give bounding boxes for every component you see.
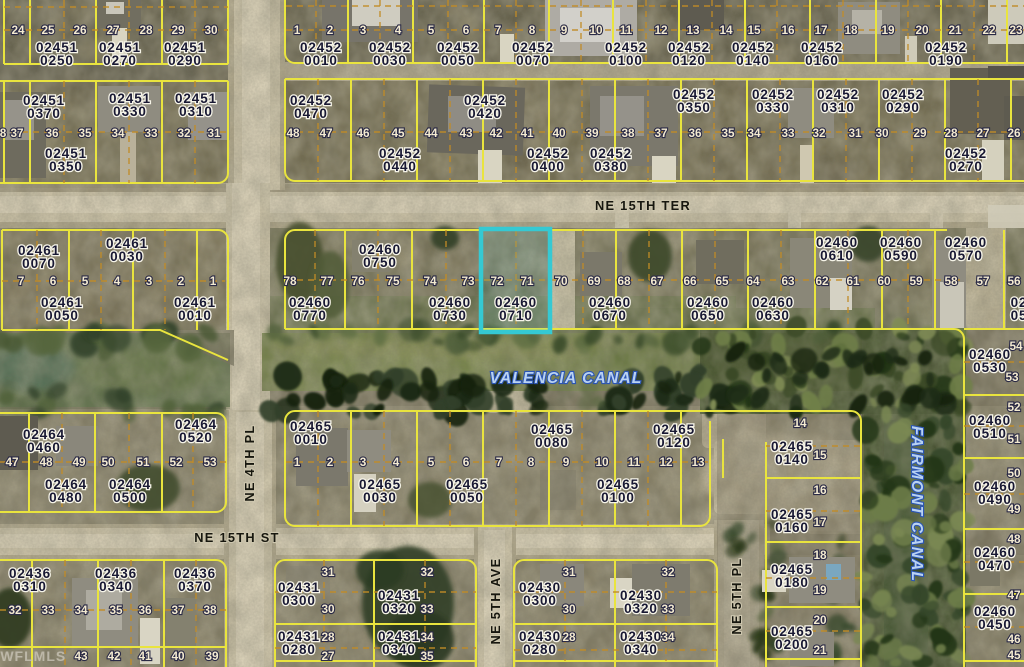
svg-text:27: 27 <box>976 126 990 140</box>
svg-text:17: 17 <box>814 23 828 37</box>
svg-text:17: 17 <box>813 515 827 529</box>
svg-text:63: 63 <box>781 274 795 288</box>
svg-text:0120: 0120 <box>657 435 691 450</box>
svg-text:0010: 0010 <box>178 308 212 323</box>
svg-text:33: 33 <box>661 602 675 616</box>
svg-text:0400: 0400 <box>531 159 565 174</box>
svg-text:50: 50 <box>101 455 115 469</box>
svg-text:15: 15 <box>747 23 761 37</box>
svg-text:6: 6 <box>463 23 470 37</box>
svg-text:2: 2 <box>327 455 334 469</box>
svg-text:37: 37 <box>654 126 668 140</box>
svg-text:SWFLMLS: SWFLMLS <box>0 648 66 664</box>
svg-text:14: 14 <box>793 416 807 430</box>
svg-text:0300: 0300 <box>282 593 316 608</box>
svg-text:0050: 0050 <box>441 53 475 68</box>
svg-text:0140: 0140 <box>736 53 770 68</box>
svg-text:FAIRMONT CANAL: FAIRMONT CANAL <box>908 426 925 582</box>
svg-text:21: 21 <box>813 643 827 657</box>
svg-text:0300: 0300 <box>523 593 557 608</box>
svg-text:48: 48 <box>286 126 300 140</box>
svg-text:0480: 0480 <box>49 490 83 505</box>
svg-text:64: 64 <box>746 274 760 288</box>
svg-text:31: 31 <box>562 565 576 579</box>
svg-text:39: 39 <box>585 126 599 140</box>
svg-text:0050: 0050 <box>45 308 79 323</box>
svg-text:73: 73 <box>461 274 475 288</box>
svg-text:37: 37 <box>171 603 185 617</box>
svg-text:40: 40 <box>171 649 185 663</box>
svg-text:0420: 0420 <box>468 106 502 121</box>
svg-text:13: 13 <box>686 23 700 37</box>
svg-text:0650: 0650 <box>691 308 725 323</box>
svg-text:9: 9 <box>563 455 570 469</box>
svg-text:0100: 0100 <box>601 490 635 505</box>
svg-text:54: 54 <box>1009 339 1023 353</box>
svg-text:30: 30 <box>562 602 576 616</box>
svg-text:0530: 0530 <box>973 360 1007 375</box>
svg-text:47: 47 <box>319 126 333 140</box>
svg-text:4: 4 <box>395 23 402 37</box>
svg-text:0290: 0290 <box>886 100 920 115</box>
svg-text:15: 15 <box>813 448 827 462</box>
svg-text:0520: 0520 <box>179 430 213 445</box>
svg-text:32: 32 <box>177 126 191 140</box>
svg-text:43: 43 <box>459 126 473 140</box>
svg-text:58: 58 <box>944 274 958 288</box>
svg-text:35: 35 <box>78 126 92 140</box>
svg-text:36: 36 <box>45 126 59 140</box>
svg-text:0010: 0010 <box>294 432 328 447</box>
svg-text:0340: 0340 <box>382 642 416 657</box>
svg-text:39: 39 <box>205 649 219 663</box>
svg-text:33: 33 <box>420 602 434 616</box>
svg-text:0310: 0310 <box>13 579 47 594</box>
svg-text:36: 36 <box>138 603 152 617</box>
svg-text:7: 7 <box>18 274 25 288</box>
svg-text:0460: 0460 <box>27 440 61 455</box>
svg-text:2: 2 <box>327 23 334 37</box>
svg-text:0320: 0320 <box>624 601 658 616</box>
svg-text:3: 3 <box>360 23 367 37</box>
svg-text:59: 59 <box>909 274 923 288</box>
svg-text:43: 43 <box>74 649 88 663</box>
svg-text:74: 74 <box>423 274 437 288</box>
svg-text:VALENCIA CANAL: VALENCIA CANAL <box>490 370 643 387</box>
svg-text:33: 33 <box>781 126 795 140</box>
svg-text:0730: 0730 <box>433 308 467 323</box>
svg-text:60: 60 <box>877 274 891 288</box>
svg-text:69: 69 <box>587 274 601 288</box>
svg-text:41: 41 <box>520 126 534 140</box>
svg-text:8: 8 <box>529 23 536 37</box>
svg-text:42: 42 <box>489 126 503 140</box>
svg-text:0280: 0280 <box>282 642 316 657</box>
svg-text:38: 38 <box>203 603 217 617</box>
svg-text:20: 20 <box>915 23 929 37</box>
svg-text:0030: 0030 <box>363 490 397 505</box>
svg-text:30: 30 <box>204 23 218 37</box>
svg-text:6: 6 <box>463 455 470 469</box>
svg-text:9: 9 <box>561 23 568 37</box>
svg-text:28: 28 <box>139 23 153 37</box>
svg-text:0160: 0160 <box>775 520 809 535</box>
svg-text:0770: 0770 <box>293 308 327 323</box>
svg-text:65: 65 <box>715 274 729 288</box>
svg-text:0190: 0190 <box>929 53 963 68</box>
svg-text:10: 10 <box>595 455 609 469</box>
svg-text:11: 11 <box>628 455 641 469</box>
svg-text:8: 8 <box>528 455 535 469</box>
svg-text:51: 51 <box>1007 432 1021 446</box>
svg-text:28: 28 <box>562 630 576 644</box>
svg-text:0270: 0270 <box>949 159 983 174</box>
svg-text:6: 6 <box>50 274 57 288</box>
svg-text:0340: 0340 <box>99 579 133 594</box>
svg-text:0140: 0140 <box>775 452 809 467</box>
svg-text:30: 30 <box>875 126 889 140</box>
svg-text:2: 2 <box>178 274 185 288</box>
svg-text:52: 52 <box>1007 400 1021 414</box>
svg-text:51: 51 <box>136 455 150 469</box>
svg-text:13: 13 <box>691 455 705 469</box>
svg-text:23: 23 <box>1009 23 1023 37</box>
svg-text:0710: 0710 <box>499 308 533 323</box>
svg-text:26: 26 <box>1007 126 1021 140</box>
svg-text:72: 72 <box>490 274 504 288</box>
svg-text:52: 52 <box>169 455 183 469</box>
svg-text:12: 12 <box>654 23 668 37</box>
svg-text:18: 18 <box>813 548 827 562</box>
svg-text:48: 48 <box>1007 532 1021 546</box>
svg-text:45: 45 <box>391 126 405 140</box>
svg-text:40: 40 <box>552 126 566 140</box>
svg-text:0330: 0330 <box>756 100 790 115</box>
svg-text:48: 48 <box>39 455 53 469</box>
svg-text:34: 34 <box>661 630 675 644</box>
svg-text:0200: 0200 <box>775 637 809 652</box>
svg-text:0050: 0050 <box>450 490 484 505</box>
svg-text:34: 34 <box>74 603 88 617</box>
svg-text:22: 22 <box>982 23 996 37</box>
svg-text:50: 50 <box>1007 466 1021 480</box>
svg-text:25: 25 <box>41 23 55 37</box>
svg-text:7: 7 <box>496 455 503 469</box>
svg-text:41: 41 <box>138 649 152 663</box>
svg-text:NE 4TH PL: NE 4TH PL <box>242 424 257 501</box>
svg-text:3: 3 <box>360 455 367 469</box>
svg-text:34: 34 <box>111 126 125 140</box>
svg-text:66: 66 <box>683 274 697 288</box>
svg-text:31: 31 <box>321 565 335 579</box>
svg-text:28: 28 <box>321 630 335 644</box>
svg-text:0160: 0160 <box>805 53 839 68</box>
svg-text:35: 35 <box>420 649 434 663</box>
svg-text:42: 42 <box>107 649 121 663</box>
svg-text:0570: 0570 <box>949 248 983 263</box>
svg-text:5: 5 <box>82 274 89 288</box>
svg-text:0270: 0270 <box>103 53 137 68</box>
svg-text:35: 35 <box>721 126 735 140</box>
svg-text:76: 76 <box>351 274 365 288</box>
svg-text:7: 7 <box>495 23 502 37</box>
svg-text:0330: 0330 <box>113 104 147 119</box>
svg-text:0380: 0380 <box>594 159 628 174</box>
svg-text:0070: 0070 <box>516 53 550 68</box>
svg-text:33: 33 <box>41 603 55 617</box>
svg-text:12: 12 <box>659 455 673 469</box>
svg-text:28: 28 <box>944 126 958 140</box>
svg-text:4: 4 <box>393 455 400 469</box>
svg-text:29: 29 <box>171 23 185 37</box>
svg-text:1: 1 <box>294 455 301 469</box>
svg-text:70: 70 <box>554 274 568 288</box>
svg-text:27: 27 <box>321 649 335 663</box>
svg-text:5: 5 <box>428 23 435 37</box>
svg-text:0340: 0340 <box>624 642 658 657</box>
svg-text:32: 32 <box>420 565 434 579</box>
svg-text:1: 1 <box>294 23 301 37</box>
svg-text:0610: 0610 <box>820 248 854 263</box>
svg-text:34: 34 <box>747 126 761 140</box>
svg-text:0450: 0450 <box>978 617 1012 632</box>
svg-text:18: 18 <box>844 23 858 37</box>
svg-text:0310: 0310 <box>179 104 213 119</box>
svg-text:0080: 0080 <box>535 435 569 450</box>
svg-text:0180: 0180 <box>775 575 809 590</box>
svg-text:0010: 0010 <box>304 53 338 68</box>
svg-text:33: 33 <box>144 126 158 140</box>
svg-text:35: 35 <box>109 603 123 617</box>
svg-text:4: 4 <box>114 274 121 288</box>
svg-text:11: 11 <box>620 23 633 37</box>
svg-text:32: 32 <box>661 565 675 579</box>
svg-text:0500: 0500 <box>113 490 147 505</box>
svg-text:1: 1 <box>210 274 217 288</box>
svg-text:NE 5TH PL: NE 5TH PL <box>729 557 744 634</box>
svg-text:71: 71 <box>520 274 534 288</box>
svg-text:NE 15TH TER: NE 15TH TER <box>595 198 691 213</box>
svg-text:67: 67 <box>650 274 664 288</box>
svg-text:21: 21 <box>948 23 962 37</box>
svg-text:0470: 0470 <box>978 558 1012 573</box>
svg-text:NE 15TH ST: NE 15TH ST <box>194 530 280 545</box>
svg-text:46: 46 <box>1007 632 1021 646</box>
svg-text:14: 14 <box>719 23 733 37</box>
svg-text:0470: 0470 <box>294 106 328 121</box>
svg-text:27: 27 <box>106 23 120 37</box>
svg-text:3: 3 <box>146 274 153 288</box>
svg-text:32: 32 <box>8 603 22 617</box>
svg-text:0030: 0030 <box>373 53 407 68</box>
svg-text:32: 32 <box>812 126 826 140</box>
svg-text:0350: 0350 <box>677 100 711 115</box>
svg-text:05: 05 <box>1011 308 1024 323</box>
svg-text:53: 53 <box>1005 370 1019 384</box>
svg-text:29: 29 <box>913 126 927 140</box>
svg-text:20: 20 <box>813 613 827 627</box>
svg-text:0310: 0310 <box>821 100 855 115</box>
svg-text:0120: 0120 <box>672 53 706 68</box>
svg-text:38: 38 <box>621 126 635 140</box>
svg-text:77: 77 <box>320 274 334 288</box>
svg-text:47: 47 <box>1007 588 1021 602</box>
svg-text:62: 62 <box>815 274 829 288</box>
svg-text:24: 24 <box>11 23 25 37</box>
svg-text:0750: 0750 <box>363 255 397 270</box>
svg-text:57: 57 <box>976 274 990 288</box>
svg-text:30: 30 <box>321 602 335 616</box>
svg-text:0320: 0320 <box>382 601 416 616</box>
svg-text:0590: 0590 <box>884 248 918 263</box>
svg-text:75: 75 <box>386 274 400 288</box>
svg-text:53: 53 <box>203 455 217 469</box>
svg-text:49: 49 <box>72 455 86 469</box>
svg-text:0670: 0670 <box>593 308 627 323</box>
svg-text:36: 36 <box>688 126 702 140</box>
svg-text:16: 16 <box>781 23 795 37</box>
svg-text:0510: 0510 <box>973 426 1007 441</box>
svg-text:68: 68 <box>617 274 631 288</box>
svg-text:19: 19 <box>813 583 827 597</box>
svg-text:0070: 0070 <box>22 256 56 271</box>
svg-text:0100: 0100 <box>609 53 643 68</box>
svg-text:NE 5TH AVE: NE 5TH AVE <box>488 558 503 645</box>
svg-text:0350: 0350 <box>49 159 83 174</box>
svg-text:10: 10 <box>589 23 603 37</box>
svg-text:31: 31 <box>207 126 221 140</box>
svg-text:0250: 0250 <box>40 53 74 68</box>
svg-text:16: 16 <box>813 483 827 497</box>
svg-text:5: 5 <box>428 455 435 469</box>
svg-text:37: 37 <box>10 126 24 140</box>
svg-text:34: 34 <box>420 630 434 644</box>
svg-text:47: 47 <box>5 455 19 469</box>
svg-text:0290: 0290 <box>168 53 202 68</box>
svg-text:61: 61 <box>846 274 860 288</box>
svg-text:56: 56 <box>1007 274 1021 288</box>
svg-text:0280: 0280 <box>523 642 557 657</box>
svg-text:45: 45 <box>1007 648 1021 662</box>
svg-text:49: 49 <box>1007 502 1021 516</box>
svg-text:78: 78 <box>283 274 297 288</box>
svg-text:31: 31 <box>848 126 862 140</box>
svg-text:46: 46 <box>356 126 370 140</box>
svg-text:8: 8 <box>0 126 7 140</box>
svg-text:26: 26 <box>73 23 87 37</box>
svg-text:0370: 0370 <box>27 106 61 121</box>
svg-text:0630: 0630 <box>756 308 790 323</box>
svg-text:0030: 0030 <box>110 249 144 264</box>
svg-text:0440: 0440 <box>383 159 417 174</box>
svg-text:19: 19 <box>881 23 895 37</box>
svg-text:0370: 0370 <box>178 579 212 594</box>
svg-text:44: 44 <box>424 126 438 140</box>
